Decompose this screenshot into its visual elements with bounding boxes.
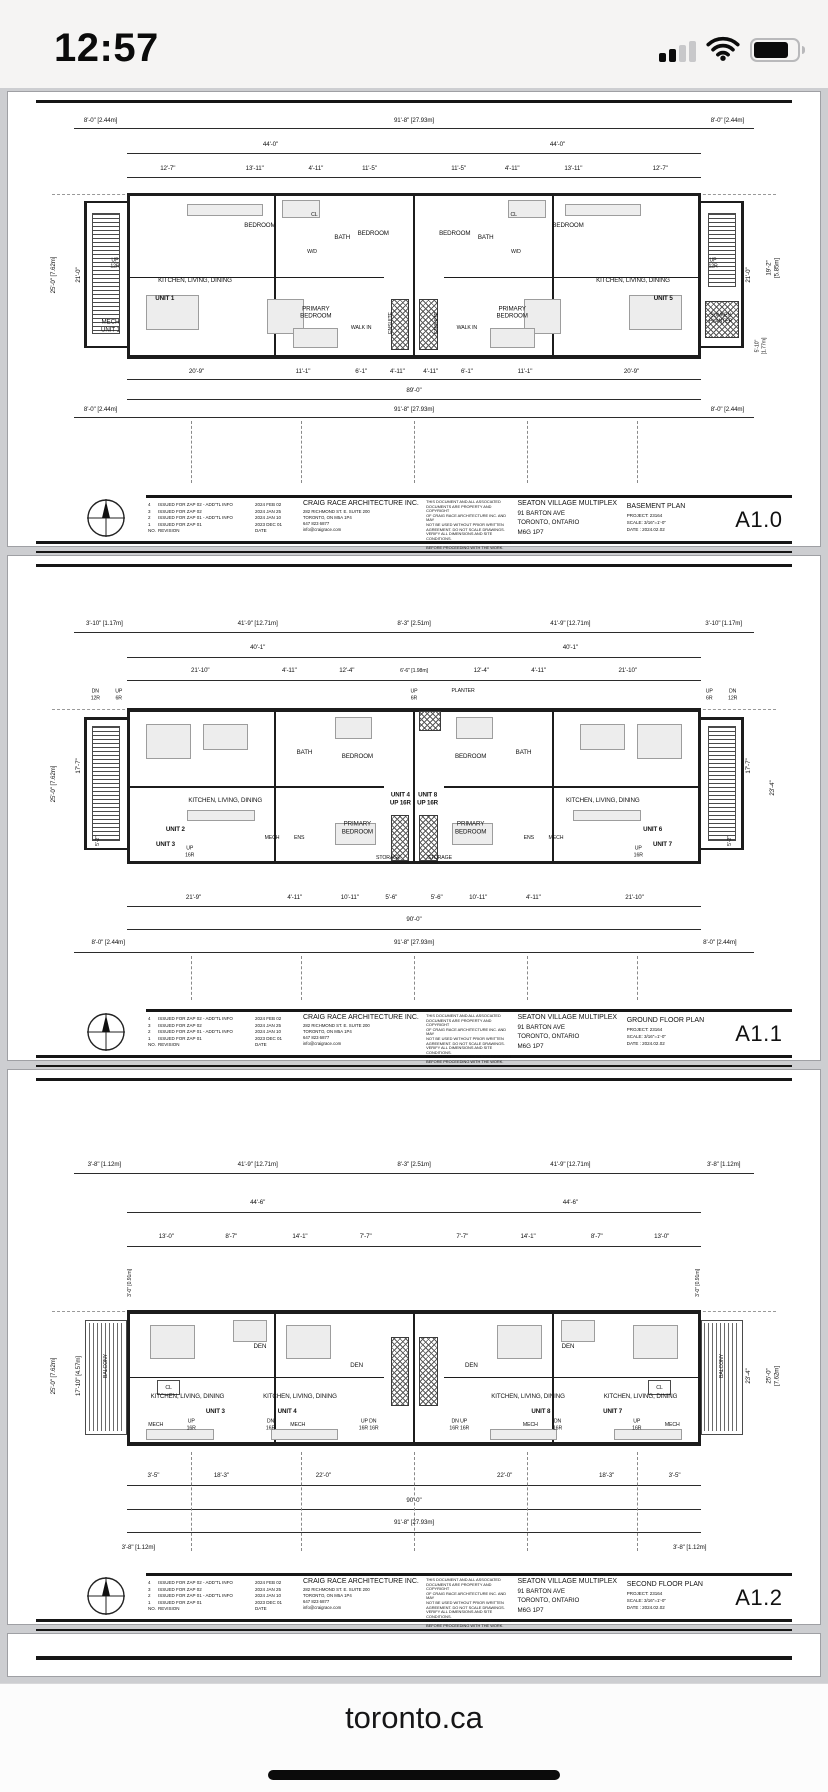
plan-label: DN 16R	[553, 1419, 562, 1432]
plan-shape	[191, 1452, 192, 1550]
plan-shape	[127, 1212, 701, 1213]
plan-shape	[127, 379, 701, 380]
cellular-signal-icon	[659, 38, 696, 62]
plan-label: 4'-11"	[287, 894, 302, 902]
plan-label: 12'-4"	[339, 667, 354, 675]
plan-shape	[203, 724, 248, 751]
plan-label: KITCHEN, LIVING, DINING	[263, 1393, 337, 1401]
plan-label: 14'-1"	[520, 1234, 535, 1242]
plan-shape	[527, 1452, 528, 1550]
plan-label: KITCHEN, LIVING, DINING	[188, 797, 262, 805]
plan-shape	[614, 1429, 682, 1440]
architect-name: CRAIG RACE ARCHITECTURE INC.	[303, 1578, 420, 1585]
architect-name: CRAIG RACE ARCHITECTURE INC.	[303, 500, 420, 507]
plan-shape	[271, 1429, 339, 1440]
title-block-bottom-line	[36, 1055, 791, 1067]
disclaimer: THIS DOCUMENT AND ALL ASSOCIATED DOCUMEN…	[426, 500, 511, 540]
plan-shape	[293, 328, 338, 348]
plan-label: 40'-1"	[250, 644, 265, 652]
sheet-card-partial	[7, 1633, 821, 1677]
plan-shape	[527, 956, 528, 1000]
second-floor-plan-drawing: 3'-8" [1.12m]41'-9" [12.71m]8'-3" [2.51m…	[36, 1081, 791, 1573]
project-city: TORONTO, ONTARIO	[517, 518, 620, 527]
plan-label: 3'-5"	[148, 1472, 160, 1480]
plan-shape	[127, 929, 701, 930]
plan-label: 91'-8" [27.93m]	[394, 117, 434, 125]
project-block: SEATON VILLAGE MULTIPLEX 91 BARTON AVE T…	[517, 1014, 620, 1054]
plan-label: KITCHEN, LIVING, DINING	[604, 1393, 678, 1401]
revision-table: 4ISSUED FOR ZAP 02 - ADD'TL INFO2024 FEB…	[148, 1014, 297, 1054]
plan-label: PRIMARY BEDROOM	[455, 820, 486, 836]
plan-label: 4'-11"	[531, 667, 546, 675]
plan-label: BEDROOM	[455, 753, 486, 761]
plan-label: 3'-0" [0.91m]	[695, 1269, 702, 1297]
plan-label: 17'-7"	[745, 758, 753, 773]
sheet-info: GROUND FLOOR PLAN PROJECT: 23164 SCALE: …	[627, 1014, 722, 1054]
plan-shape	[414, 956, 415, 1000]
plan-label: MECH UNIT 1	[101, 319, 120, 335]
plan-label: UP 12R	[110, 257, 119, 270]
plan-shape	[580, 724, 625, 751]
plan-label: 21'-10"	[191, 667, 210, 675]
plan-label: 25'-0" [7.62m]	[765, 1366, 781, 1386]
plan-label: 4'-11"	[308, 165, 323, 173]
ground-floor-plan-drawing: 3'-10" [1.17m]41'-9" [12.71m]8'-3" [2.51…	[36, 567, 791, 1009]
iphone-screen: 12:57 8'-0" [2.4	[0, 0, 828, 1792]
plan-shape	[741, 201, 744, 348]
plan-label: W/D	[511, 249, 521, 256]
plan-label: BEDROOM	[552, 223, 583, 231]
plan-shape	[490, 1429, 558, 1440]
plan-shape	[701, 346, 744, 348]
plan-label: 22'-0"	[316, 1472, 331, 1480]
plan-label: 6'-1"	[461, 368, 473, 376]
plan-label: 5'-6"	[385, 894, 397, 902]
plan-label: 6'-6" [1.98m]	[400, 668, 428, 675]
plan-label: UNIT 7	[653, 841, 672, 849]
plan-shape	[74, 1173, 754, 1174]
plan-label: 13'-11"	[246, 165, 264, 173]
plan-label: MECH	[290, 1422, 305, 1429]
date-value: 2024.02.02	[642, 1041, 665, 1046]
plan-label: 21'-10"	[618, 667, 637, 675]
plan-label: 8'-0" [2.44m]	[84, 406, 117, 414]
plan-label: 3'-10" [1.17m]	[86, 621, 123, 629]
sheet-title: SECOND FLOOR PLAN	[627, 1581, 722, 1588]
sheet-border-line	[36, 1656, 791, 1660]
plan-label: 12'-7"	[160, 165, 175, 173]
scale-label: SCALE:	[627, 1034, 643, 1039]
plan-label: UNIT 4 UP 16R	[390, 791, 411, 807]
plan-label: PLANTER	[451, 688, 474, 695]
plan-label: 17'-10" [4.57m]	[75, 1356, 83, 1396]
plan-label: 12'-7"	[653, 165, 668, 173]
plan-label: 41'-9" [12.71m]	[550, 621, 590, 629]
plan-label: 21'-0"	[745, 268, 753, 283]
plan-label: MECH	[665, 1422, 680, 1429]
sheet-info: SECOND FLOOR PLAN PROJECT: 23164 SCALE: …	[627, 1578, 722, 1618]
plan-shape	[84, 848, 127, 851]
revision-date: DATE	[255, 1042, 297, 1049]
plan-label: DN 12R	[728, 689, 737, 702]
plan-label: 13'-0"	[654, 1234, 669, 1242]
plan-label: 41'-9" [12.71m]	[238, 1161, 278, 1169]
plan-shape	[741, 717, 744, 850]
project-city: TORONTO, ONTARIO	[517, 1596, 620, 1605]
sheet-info: BASEMENT PLAN PROJECT: 23164 SCALE: 3/16…	[627, 500, 722, 540]
date-label: DATE :	[627, 527, 641, 532]
plan-shape	[419, 1337, 438, 1406]
plan-shape	[146, 724, 191, 759]
plan-shape	[191, 421, 192, 484]
revision-desc: REVISION	[158, 528, 255, 535]
plan-label: 41'-9" [12.71m]	[238, 621, 278, 629]
scale-label: SCALE:	[627, 520, 643, 525]
plan-shape	[187, 810, 255, 821]
plan-shape	[127, 153, 701, 154]
plan-label: ENSUITE	[434, 312, 441, 334]
plan-label: 25'-0" [7.62m]	[50, 765, 58, 802]
plan-shape	[414, 421, 415, 484]
plan-label: 11'-1"	[296, 368, 311, 376]
plan-label: 21'-10"	[625, 894, 644, 902]
scale-value: 3/16"=1'-0"	[644, 1598, 666, 1603]
status-time: 12:57	[54, 26, 159, 71]
plan-label: 23'-4"	[745, 1369, 753, 1384]
plan-label: DEN	[465, 1362, 478, 1370]
plan-shape	[637, 1452, 638, 1550]
title-block-bottom-line	[36, 541, 791, 553]
plan-label: 5'-2"	[726, 836, 733, 846]
project-no-value: 23164	[650, 1591, 663, 1596]
plan-label: 91'-8" [27.93m]	[394, 406, 434, 414]
sheet-title: GROUND FLOOR PLAN	[627, 1017, 722, 1024]
plan-shape	[127, 399, 701, 400]
plan-shape	[456, 717, 494, 739]
plan-label: SUNKEN PLANTER	[709, 312, 732, 325]
plan-label: 4'-11"	[505, 165, 520, 173]
north-arrow-icon	[86, 498, 126, 538]
plan-label: 20'-9"	[624, 368, 639, 376]
plan-shape	[84, 717, 87, 850]
plan-label: 21'-9"	[186, 894, 201, 902]
sheet-project-no: PROJECT: 23164	[627, 1027, 722, 1034]
revision-desc: REVISION	[158, 1042, 255, 1049]
plan-shape	[127, 680, 701, 681]
revision-row: NO.REVISIONDATE	[148, 1042, 297, 1049]
plan-shape	[708, 213, 737, 287]
status-bar: 12:57	[0, 0, 828, 88]
plan-label: 44'-0"	[550, 141, 565, 149]
plan-label: 11'-5"	[451, 165, 466, 173]
plan-label: UP 16R	[632, 1419, 641, 1432]
plan-shape	[701, 848, 744, 851]
plan-label: UP 16R	[634, 846, 643, 859]
plan-shape	[146, 1429, 214, 1440]
plan-shape	[286, 1325, 331, 1359]
revision-desc: REVISION	[158, 1606, 255, 1613]
plan-label: ENS	[524, 835, 534, 842]
plan-label: UNIT 3	[206, 1408, 225, 1416]
plan-shape	[92, 213, 121, 335]
revision-table: 4ISSUED FOR ZAP 02 - ADD'TL INFO2024 FEB…	[148, 500, 297, 540]
plan-shape	[127, 906, 701, 907]
plan-label: 11'-1"	[518, 368, 533, 376]
plan-label: 3'-8" [1.12m]	[122, 1545, 155, 1553]
scale-value: 3/16"=1'-0"	[644, 520, 666, 525]
address-bar[interactable]: toronto.ca	[0, 1700, 828, 1736]
date-value: 2024.02.02	[642, 527, 665, 532]
date-value: 2024.02.02	[642, 1605, 665, 1610]
plan-shape	[187, 204, 263, 216]
plan-label: 91'-8" [27.93m]	[394, 939, 434, 947]
plan-label: CL	[656, 1384, 662, 1391]
plan-label: 10'-11"	[341, 894, 359, 902]
plan-label: 22'-0"	[497, 1472, 512, 1480]
plan-label: 3'-5"	[669, 1472, 681, 1480]
title-block: 4ISSUED FOR ZAP 02 - ADD'TL INFO2024 FEB…	[146, 495, 792, 540]
north-arrow-icon	[86, 1576, 126, 1616]
architect-email: info@craigrace.com	[303, 1605, 420, 1611]
plan-label: 12'-4"	[474, 667, 489, 675]
plan-label: KITCHEN, LIVING, DINING	[151, 1393, 225, 1401]
plan-shape	[565, 204, 641, 216]
date-label: DATE :	[627, 1041, 641, 1046]
revision-no: NO.	[148, 1042, 158, 1049]
plan-label: BATH	[516, 749, 532, 757]
date-label: DATE :	[627, 1605, 641, 1610]
plan-label: 8'-7"	[591, 1234, 603, 1242]
plan-shape	[84, 717, 127, 720]
sheet-number: A1.0	[728, 500, 790, 540]
home-indicator[interactable]	[268, 1770, 560, 1780]
plan-label: 90'-0"	[406, 1497, 421, 1505]
plan-label: BATH	[334, 234, 350, 242]
sheet-card-a1-2: 3'-8" [1.12m]41'-9" [12.71m]8'-3" [2.51m…	[7, 1069, 821, 1625]
plan-label: 4'-11"	[282, 667, 297, 675]
plan-shape	[701, 717, 744, 720]
revision-row: NO.REVISIONDATE	[148, 528, 297, 535]
project-city: TORONTO, ONTARIO	[517, 1032, 620, 1041]
project-postal: M6G 1P7	[517, 1606, 620, 1615]
plan-label: UNIT 6	[643, 826, 662, 834]
plan-label: 8'-3" [2.51m]	[397, 621, 430, 629]
revision-date: DATE	[255, 528, 297, 535]
plan-label: DEN	[350, 1362, 363, 1370]
plan-shape	[84, 201, 127, 203]
plan-label: UP DN 16R 16R	[359, 1419, 379, 1432]
plan-label: BEDROOM	[244, 223, 275, 231]
plan-shape	[633, 1325, 678, 1359]
plan-label: 4'-11"	[423, 368, 438, 376]
plan-shape	[444, 1377, 701, 1378]
plan-shape	[301, 1452, 302, 1550]
plan-shape	[413, 708, 416, 864]
plan-label: UP 6R	[706, 689, 713, 702]
plan-label: 18'-3"	[214, 1472, 229, 1480]
plan-label: UNIT 8	[531, 1408, 550, 1416]
plan-shape	[490, 328, 535, 348]
plan-label: 3'-8" [1.12m]	[707, 1161, 740, 1169]
sheet-title: BASEMENT PLAN	[627, 503, 722, 510]
revision-no: NO.	[148, 528, 158, 535]
plan-label: PRIMARY BEDROOM	[342, 820, 373, 836]
plan-shape	[74, 952, 754, 953]
architect-block: CRAIG RACE ARCHITECTURE INC. 282 RICHMON…	[303, 1014, 420, 1054]
plan-label: UP 16R	[187, 1419, 196, 1432]
sheet-number: A1.2	[728, 1578, 790, 1618]
plan-label: CL	[311, 211, 317, 218]
plan-shape	[84, 346, 127, 348]
project-address: 91 BARTON AVE	[517, 1587, 620, 1596]
plan-label: DEN	[254, 1343, 267, 1351]
architect-name: CRAIG RACE ARCHITECTURE INC.	[303, 1014, 420, 1021]
plan-label: 3'-8" [1.12m]	[88, 1161, 121, 1169]
architect-email: info@craigrace.com	[303, 1041, 420, 1047]
project-label: PROJECT:	[627, 1027, 649, 1032]
disclaimer: THIS DOCUMENT AND ALL ASSOCIATED DOCUMEN…	[426, 1014, 511, 1054]
basement-plan-drawing: 8'-0" [2.44m]91'-8" [27.93m]8'-0" [2.44m…	[36, 103, 791, 495]
plan-label: 89'-0"	[406, 387, 421, 395]
plan-label: MECH	[549, 835, 564, 842]
plan-label: UP 16R	[185, 846, 194, 859]
architect-email: info@craigrace.com	[303, 527, 420, 533]
plan-label: UNIT 2	[166, 826, 185, 834]
disclaimer: THIS DOCUMENT AND ALL ASSOCIATED DOCUMEN…	[426, 1578, 511, 1618]
sheet-date: DATE : 2024.02.02	[627, 1605, 722, 1612]
plan-label: KITCHEN, LIVING, DINING	[158, 277, 232, 285]
plan-label: STORAGE	[427, 855, 452, 862]
plan-label: 5'-6"	[431, 894, 443, 902]
plan-label: BATH	[478, 234, 494, 242]
project-postal: M6G 1P7	[517, 1042, 620, 1051]
plan-shape	[74, 417, 754, 418]
plan-shape	[150, 1325, 195, 1359]
plan-shape	[335, 717, 373, 739]
plan-label: 8'-7"	[225, 1234, 237, 1242]
plan-label: 7'-7"	[456, 1234, 468, 1242]
revision-date: DATE	[255, 1606, 297, 1613]
plan-label: 91'-8" [27.93m]	[394, 1519, 434, 1527]
plan-label: 8'-0" [2.44m]	[84, 117, 117, 125]
plan-label: BEDROOM	[342, 753, 373, 761]
plan-label: UNIT 3	[156, 841, 175, 849]
plan-label: 44'-0"	[263, 141, 278, 149]
plan-label: 25'-0" [7.62m]	[50, 257, 58, 294]
plan-label: 14'-1"	[292, 1234, 307, 1242]
wifi-icon	[706, 35, 740, 66]
status-icons	[659, 36, 800, 64]
project-label: PROJECT:	[627, 513, 649, 518]
plan-shape	[527, 421, 528, 484]
project-name: SEATON VILLAGE MULTIPLEX	[517, 500, 620, 507]
plan-shape	[74, 632, 754, 633]
project-block: SEATON VILLAGE MULTIPLEX 91 BARTON AVE T…	[517, 500, 620, 540]
plan-label: 5'-10" [1.77m]	[755, 331, 768, 361]
plan-label: 3'-0" [0.91m]	[127, 1269, 134, 1297]
project-postal: M6G 1P7	[517, 528, 620, 537]
plan-shape	[413, 1310, 416, 1445]
plan-shape	[444, 786, 701, 787]
plan-shape	[637, 724, 682, 759]
plan-label: 8'-0" [2.44m]	[711, 117, 744, 125]
plan-label: 44'-6"	[563, 1199, 578, 1207]
plan-shape	[191, 956, 192, 1000]
plan-label: 4'-11"	[526, 894, 541, 902]
plan-label: 23'-4"	[769, 780, 777, 795]
plan-label: 8'-0" [2.44m]	[703, 939, 736, 947]
plan-label: 10'-11"	[469, 894, 487, 902]
plan-label: 21'-0"	[75, 268, 83, 283]
plan-label: DN UP 16R 16R	[449, 1419, 469, 1432]
plan-shape	[74, 128, 754, 129]
pdf-scroll-area[interactable]: 8'-0" [2.44m]91'-8" [27.93m]8'-0" [2.44m…	[0, 88, 828, 1684]
plan-label: KITCHEN, LIVING, DINING	[596, 277, 670, 285]
plan-label: UP 12R	[708, 257, 717, 270]
plan-label: BALCONY	[719, 1354, 726, 1378]
plan-label: CL	[165, 1384, 171, 1391]
plan-shape	[708, 726, 737, 841]
project-address: 91 BARTON AVE	[517, 509, 620, 518]
sheet-project-no: PROJECT: 23164	[627, 1591, 722, 1598]
plan-shape	[92, 726, 121, 841]
plan-label: W/D	[307, 249, 317, 256]
plan-label: 19'-2" [5.85m]	[765, 258, 781, 278]
plan-label: WALK IN	[351, 325, 371, 332]
plan-shape	[391, 1337, 410, 1406]
plan-label: 3'-8" [1.12m]	[673, 1545, 706, 1553]
plan-label: DN 16R	[266, 1419, 275, 1432]
project-name: SEATON VILLAGE MULTIPLEX	[517, 1014, 620, 1021]
revision-no: NO.	[148, 1606, 158, 1613]
plan-label: WALK IN	[457, 325, 477, 332]
plan-label: PRIMARY BEDROOM	[300, 305, 331, 321]
plan-label: UNIT 8 UP 16R	[417, 791, 438, 807]
plan-label: 18'-3"	[599, 1472, 614, 1480]
sheet-card-a1-0: 8'-0" [2.44m]91'-8" [27.93m]8'-0" [2.44m…	[7, 91, 821, 547]
plan-label: KITCHEN, LIVING, DINING	[491, 1393, 565, 1401]
plan-label: 5'-2"	[95, 836, 102, 846]
title-block: 4ISSUED FOR ZAP 02 - ADD'TL INFO2024 FEB…	[146, 1009, 792, 1054]
plan-label: ENS	[294, 835, 304, 842]
plan-label: BEDROOM	[439, 230, 470, 238]
plan-shape	[637, 421, 638, 484]
plan-shape	[413, 193, 416, 358]
plan-shape	[127, 177, 701, 178]
plan-label: 8'-3" [2.51m]	[397, 1161, 430, 1169]
revision-table: 4ISSUED FOR ZAP 02 - ADD'TL INFO2024 FEB…	[148, 1578, 297, 1618]
plan-label: UP 6R	[410, 689, 417, 702]
architect-block: CRAIG RACE ARCHITECTURE INC. 282 RICHMON…	[303, 500, 420, 540]
plan-shape	[127, 1246, 701, 1247]
plan-label: KITCHEN, LIVING, DINING	[566, 797, 640, 805]
plan-shape	[127, 1377, 384, 1378]
plan-label: BEDROOM	[358, 230, 389, 238]
plan-shape	[301, 956, 302, 1000]
plan-shape	[419, 711, 442, 731]
plan-label: 20'-9"	[189, 368, 204, 376]
plan-label: 40'-1"	[563, 644, 578, 652]
safari-bottom-bar: toronto.ca	[0, 1683, 828, 1792]
plan-label: UNIT 5	[654, 295, 673, 303]
plan-label: 17'-7"	[75, 758, 83, 773]
sheet-project-no: PROJECT: 23164	[627, 513, 722, 520]
sheet-date: DATE : 2024.02.02	[627, 1041, 722, 1048]
plan-label: UNIT 4	[278, 1408, 297, 1416]
plan-label: UNIT 1	[155, 295, 174, 303]
project-no-value: 23164	[650, 513, 663, 518]
sheet-number: A1.1	[728, 1014, 790, 1054]
